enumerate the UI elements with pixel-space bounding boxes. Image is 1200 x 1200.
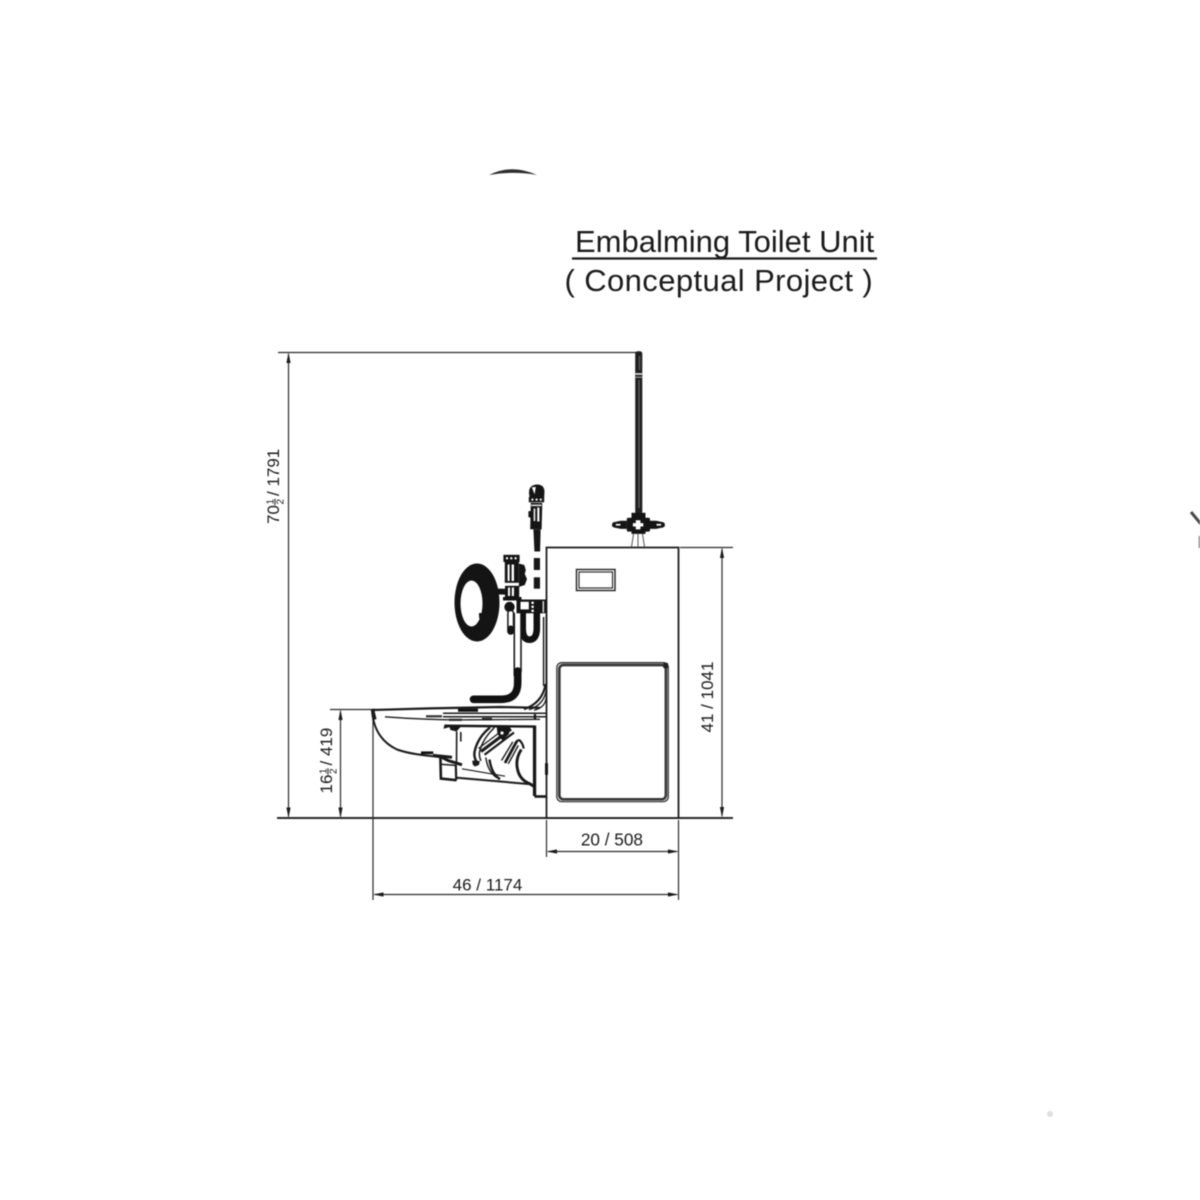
svg-text:46 / 1174: 46 / 1174 <box>453 876 523 895</box>
svg-text:20 / 508: 20 / 508 <box>581 829 643 849</box>
svg-text:/ 1791: / 1791 <box>264 449 283 496</box>
svg-text:/ 419: / 419 <box>317 728 336 766</box>
svg-text:41 / 1041: 41 / 1041 <box>698 662 717 733</box>
svg-text:2: 2 <box>329 768 340 774</box>
svg-text:Embalming Toilet Unit: Embalming Toilet Unit <box>575 224 875 259</box>
svg-text:16: 16 <box>317 775 336 794</box>
svg-text:70: 70 <box>264 505 283 524</box>
svg-text:( Conceptual Project ): ( Conceptual Project ) <box>565 263 874 298</box>
svg-text:2: 2 <box>276 499 287 505</box>
